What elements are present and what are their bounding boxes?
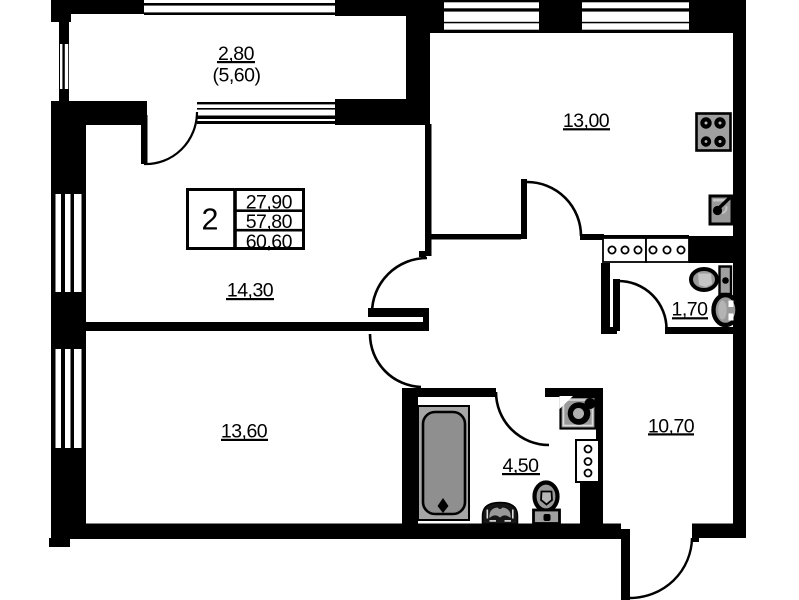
svg-text:60,60: 60,60 [246,231,293,253]
svg-text:2: 2 [202,203,219,237]
svg-text:57,80: 57,80 [246,211,293,233]
svg-text:(5,60): (5,60) [213,65,261,87]
